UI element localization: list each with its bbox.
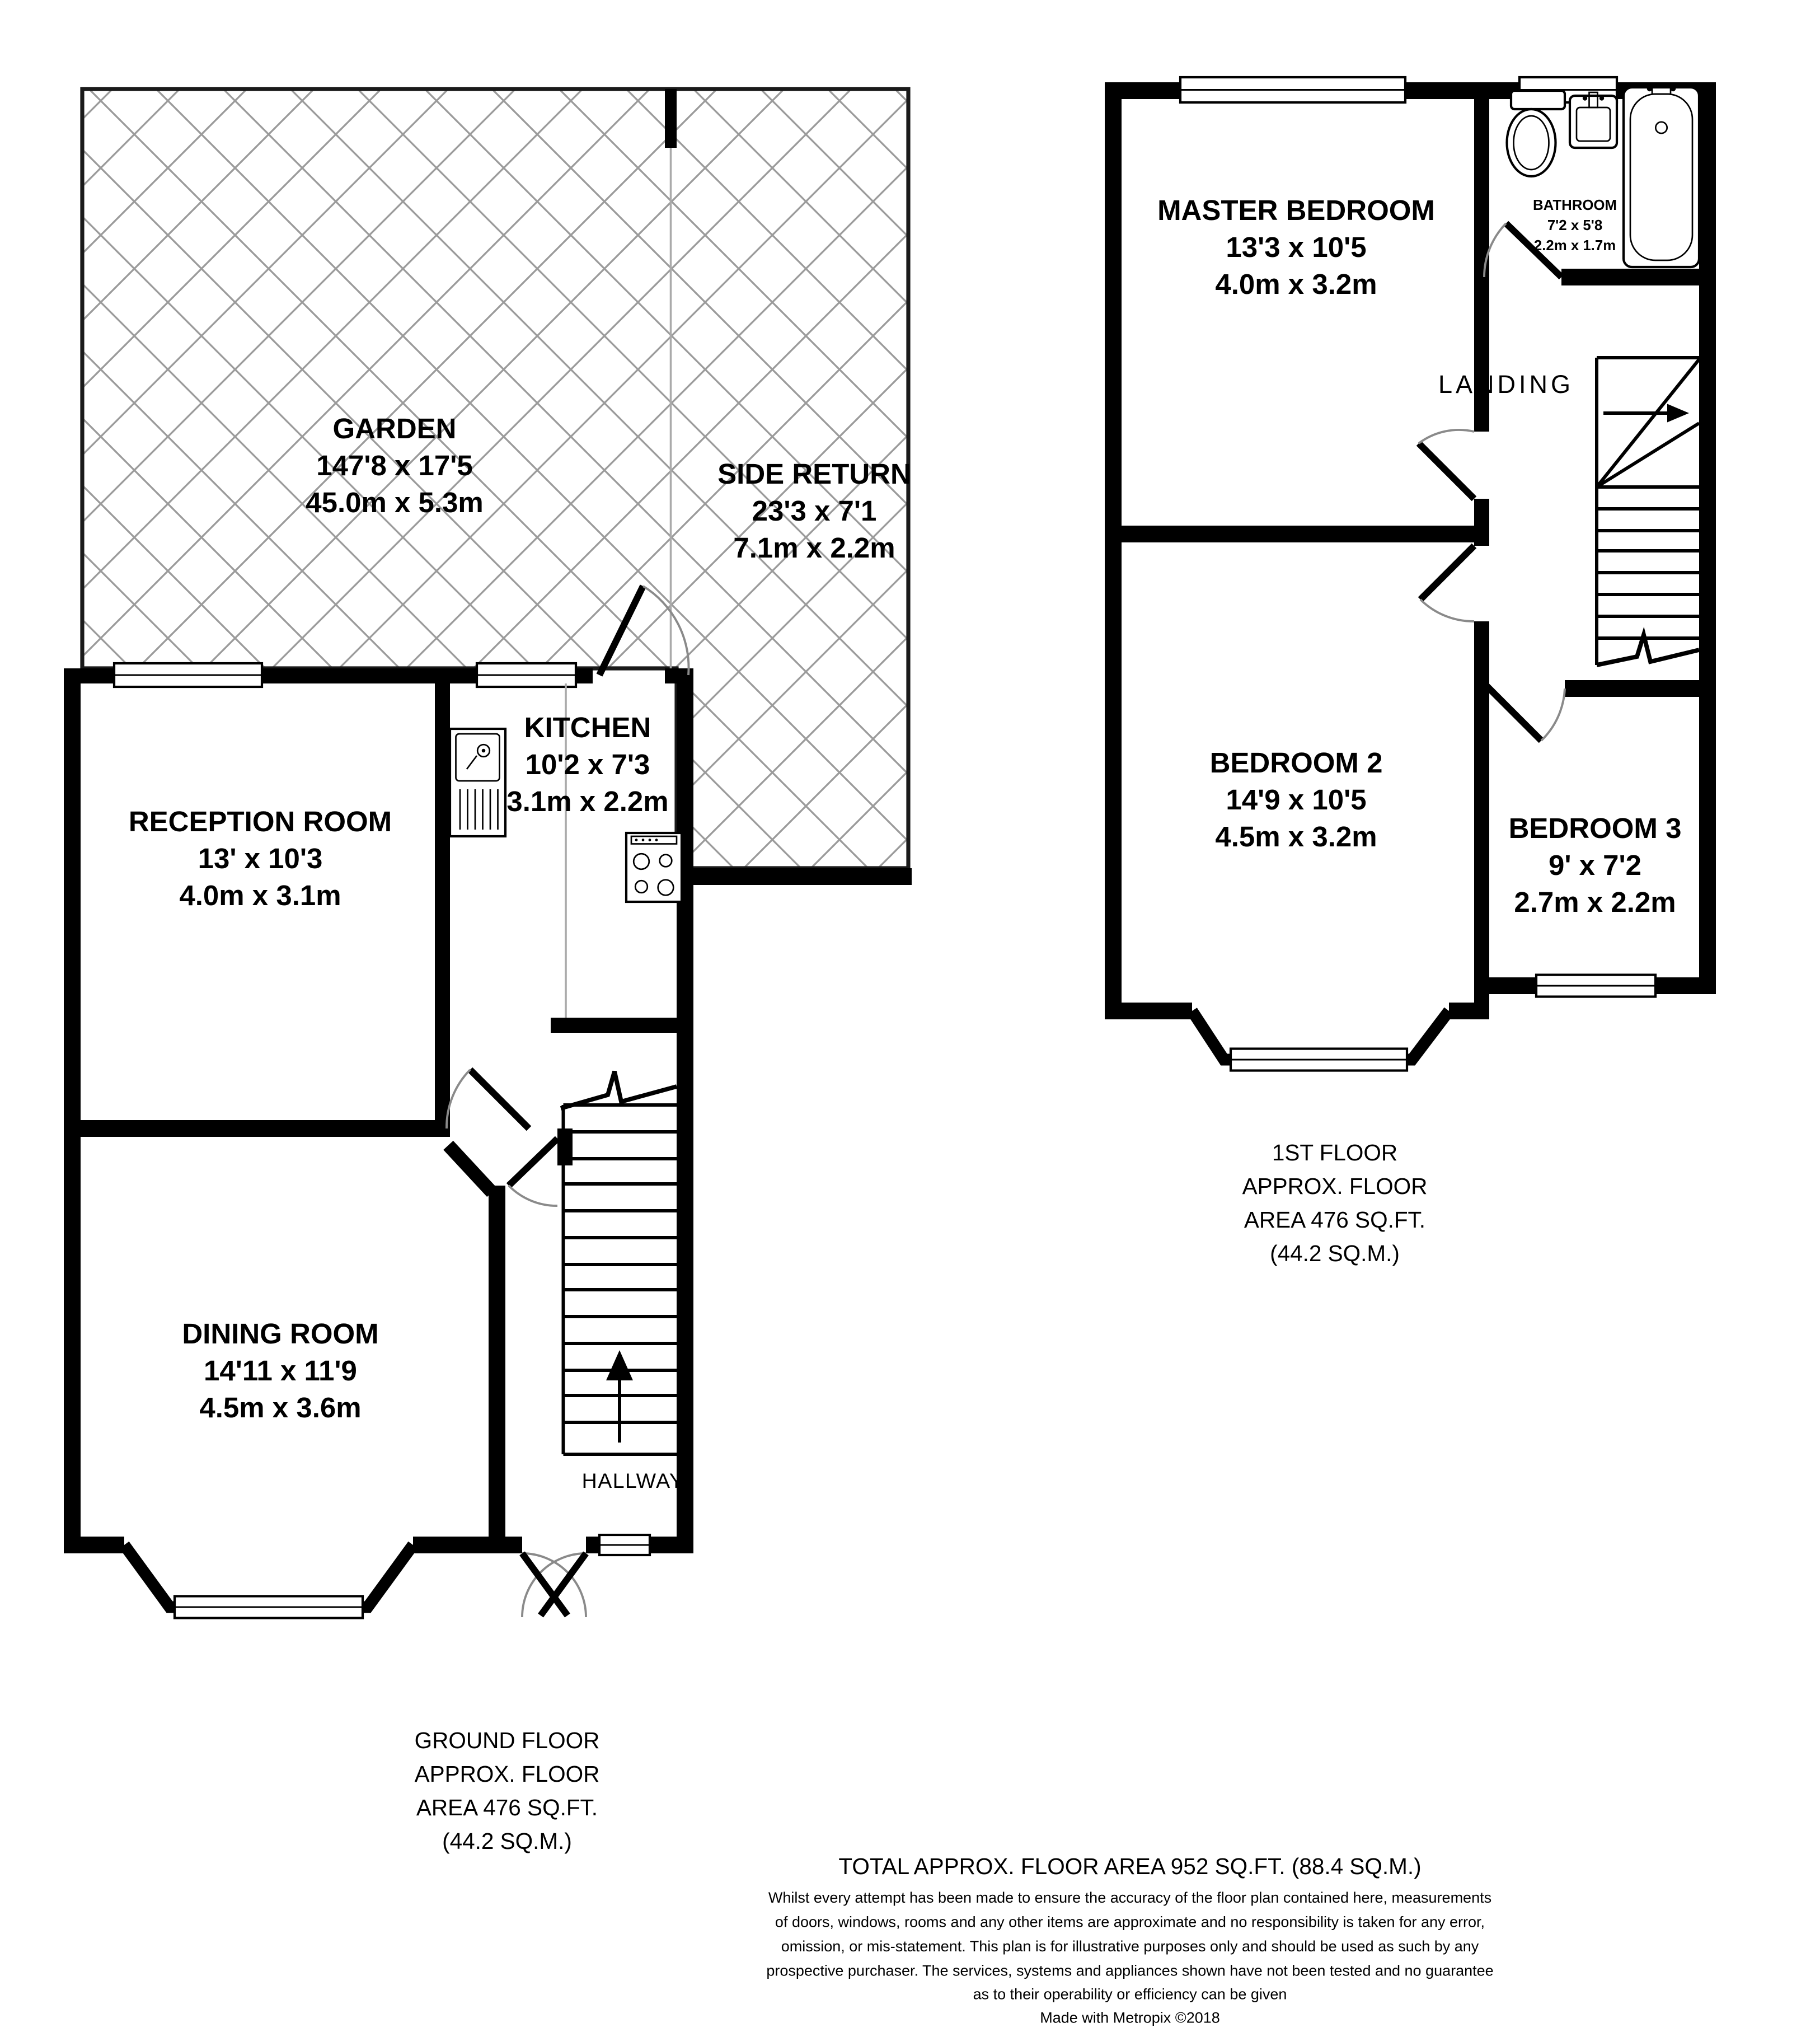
dining-label: DINING ROOM [182, 1318, 378, 1350]
gf-front-wall [413, 1537, 522, 1553]
reception-kitchen-wall [435, 683, 450, 1137]
ground-floor-plan: GARDEN 147'8 x 17'5 45.0m x 5.3m SIDE RE… [64, 89, 912, 1854]
ff-left-wall [1105, 82, 1122, 1019]
gf-top-wall [576, 668, 593, 683]
bedroom3-front-wall [1655, 977, 1716, 994]
footer-disclaimer: TOTAL APPROX. FLOOR AREA 952 SQ.FT. (88.… [766, 1853, 1493, 2026]
dining-bay-window [124, 1545, 413, 1618]
kitchen-stair-wall [551, 1018, 693, 1033]
kitchen-dim-metric: 3.1m x 2.2m [506, 785, 668, 817]
garden-dim-metric: 45.0m x 5.3m [306, 486, 484, 518]
reception-dim-imperial: 13' x 10'3 [198, 842, 323, 874]
staircase-ground [561, 1071, 677, 1454]
master-bedroom-label: MASTER BEDROOM [1157, 194, 1435, 226]
hallway-door-arc [509, 1186, 557, 1206]
garden-dim-imperial: 147'8 x 17'5 [316, 449, 473, 481]
disclaimer-line: Whilst every attempt has been made to en… [768, 1889, 1491, 1906]
side-return-label: SIDE RETURN [717, 458, 911, 490]
side-return-dim-metric: 7.1m x 2.2m [733, 532, 895, 564]
gf-front-wall [64, 1537, 124, 1553]
dining-right-wall [489, 1186, 505, 1545]
reception-bottom-wall [64, 1120, 445, 1137]
hallway-door-leaf [509, 1139, 557, 1186]
first-floor-note: APPROX. FLOOR [1242, 1173, 1428, 1199]
stair-break-line [561, 1071, 677, 1108]
bedroom3-dim-metric: 2.7m x 2.2m [1514, 886, 1676, 918]
metropix-credit: Made with Metropix ©2018 [1040, 2010, 1220, 2026]
reception-label: RECEPTION ROOM [129, 806, 392, 837]
disclaimer-line: omission, or mis-statement. This plan is… [781, 1938, 1479, 1955]
disclaimer-line: as to their operability or efficiency ca… [973, 1986, 1287, 2003]
bedroom2-bay-window [1192, 1011, 1449, 1071]
toilet-icon [1507, 91, 1565, 176]
master-bedroom-dim-imperial: 13'3 x 10'5 [1226, 231, 1366, 263]
gf-left-wall [64, 668, 81, 1553]
ff-right-wall [1699, 82, 1716, 994]
master-bedroom-dim-metric: 4.0m x 3.2m [1215, 268, 1377, 300]
first-floor-note: (44.2 SQ.M.) [1270, 1240, 1400, 1266]
reception-door-arc [447, 1070, 470, 1128]
garden-label: GARDEN [332, 413, 456, 444]
bathroom-label: BATHROOM [1533, 198, 1617, 213]
master-door-arc [1419, 430, 1474, 443]
master-landing-wall [1474, 499, 1489, 546]
hob-icon [626, 833, 682, 902]
basin-icon [1570, 92, 1617, 148]
bathroom-dim-imperial: 7'2 x 5'8 [1547, 218, 1602, 233]
bathroom-bottom-wall [1561, 269, 1699, 285]
first-floor-note: AREA 476 SQ.FT. [1244, 1207, 1425, 1233]
bathtub-icon [1624, 84, 1699, 267]
reception-door-leaf [470, 1070, 529, 1128]
bedroom3-label: BEDROOM 3 [1509, 812, 1682, 844]
bedroom2-front-wall [1105, 1003, 1192, 1019]
bedroom2-door-leaf [1420, 546, 1474, 600]
bedroom2-dim-metric: 4.5m x 3.2m [1215, 821, 1377, 853]
reception-dim-metric: 4.0m x 3.1m [179, 879, 341, 911]
master-door-leaf [1419, 443, 1474, 499]
first-floor-note: 1ST FLOOR [1272, 1140, 1397, 1165]
dining-dim-metric: 4.5m x 3.6m [199, 1392, 361, 1423]
direction-arrow-icon [1603, 404, 1689, 423]
bedroom3-front-wall [1474, 977, 1536, 994]
bedroom3-door-arc [1541, 689, 1565, 741]
garden-divider-stub [665, 89, 677, 148]
bedroom3-door-leaf [1484, 683, 1541, 741]
landing-bed2-wall [1474, 621, 1489, 1019]
front-door [522, 1553, 586, 1617]
bathroom-dim-metric: 2.2m x 1.7m [1534, 238, 1616, 254]
floor-plan: GARDEN 147'8 x 17'5 45.0m x 5.3m SIDE RE… [0, 0, 1820, 2037]
gf-front-wall [650, 1537, 693, 1553]
landing-label: LANDING [1438, 370, 1574, 399]
master-bottom-wall [1111, 526, 1474, 542]
disclaimer-line: of doors, windows, rooms and any other i… [775, 1914, 1485, 1931]
bedroom3-dim-imperial: 9' x 7'2 [1549, 849, 1641, 881]
bedroom2-front-wall [1449, 1003, 1489, 1019]
bedroom2-dim-imperial: 14'9 x 10'5 [1226, 784, 1366, 816]
first-floor-plan: MASTER BEDROOM 13'3 x 10'5 4.0m x 3.2m B… [1105, 77, 1716, 1266]
kitchen-sink-icon [450, 729, 505, 836]
bedroom3-top-wall [1565, 680, 1716, 697]
ground-floor-note: GROUND FLOOR [415, 1727, 600, 1753]
kitchen-label: KITCHEN [524, 711, 651, 743]
gf-top-wall [262, 668, 477, 683]
hallway-label: HALLWAY [582, 1469, 684, 1492]
disclaimer-line: prospective purchaser. The services, sys… [766, 1963, 1493, 1979]
staircase-first [1597, 358, 1699, 665]
ground-floor-note: APPROX. FLOOR [415, 1761, 600, 1787]
ground-floor-note: (44.2 SQ.M.) [442, 1828, 572, 1854]
total-area-line: TOTAL APPROX. FLOOR AREA 952 SQ.FT. (88.… [838, 1853, 1421, 1879]
dining-chamfer-wall [448, 1145, 492, 1192]
bedroom2-label: BEDROOM 2 [1210, 747, 1383, 779]
bedroom2-door-arc [1420, 600, 1474, 621]
ground-floor-note: AREA 476 SQ.FT. [416, 1795, 598, 1820]
dining-dim-imperial: 14'11 x 11'9 [204, 1355, 357, 1387]
ff-top-wall [1405, 82, 1519, 99]
gf-front-wall [586, 1537, 599, 1553]
gf-right-wall [677, 668, 693, 1553]
kitchen-dim-imperial: 10'2 x 7'3 [526, 748, 650, 780]
side-return-dim-imperial: 23'3 x 7'1 [752, 495, 877, 527]
side-return-bottom-wall [677, 868, 912, 885]
